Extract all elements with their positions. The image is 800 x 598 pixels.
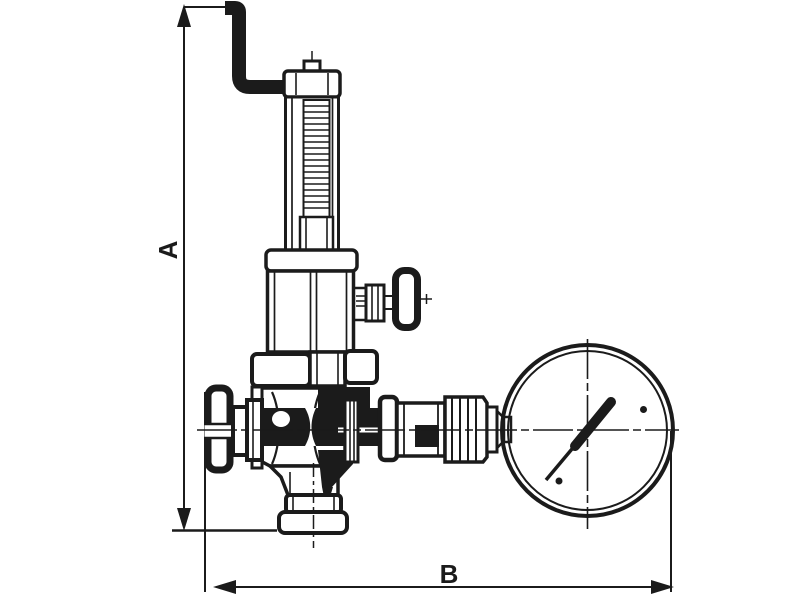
svg-text:B: B: [440, 559, 459, 589]
svg-text:A: A: [153, 240, 183, 259]
